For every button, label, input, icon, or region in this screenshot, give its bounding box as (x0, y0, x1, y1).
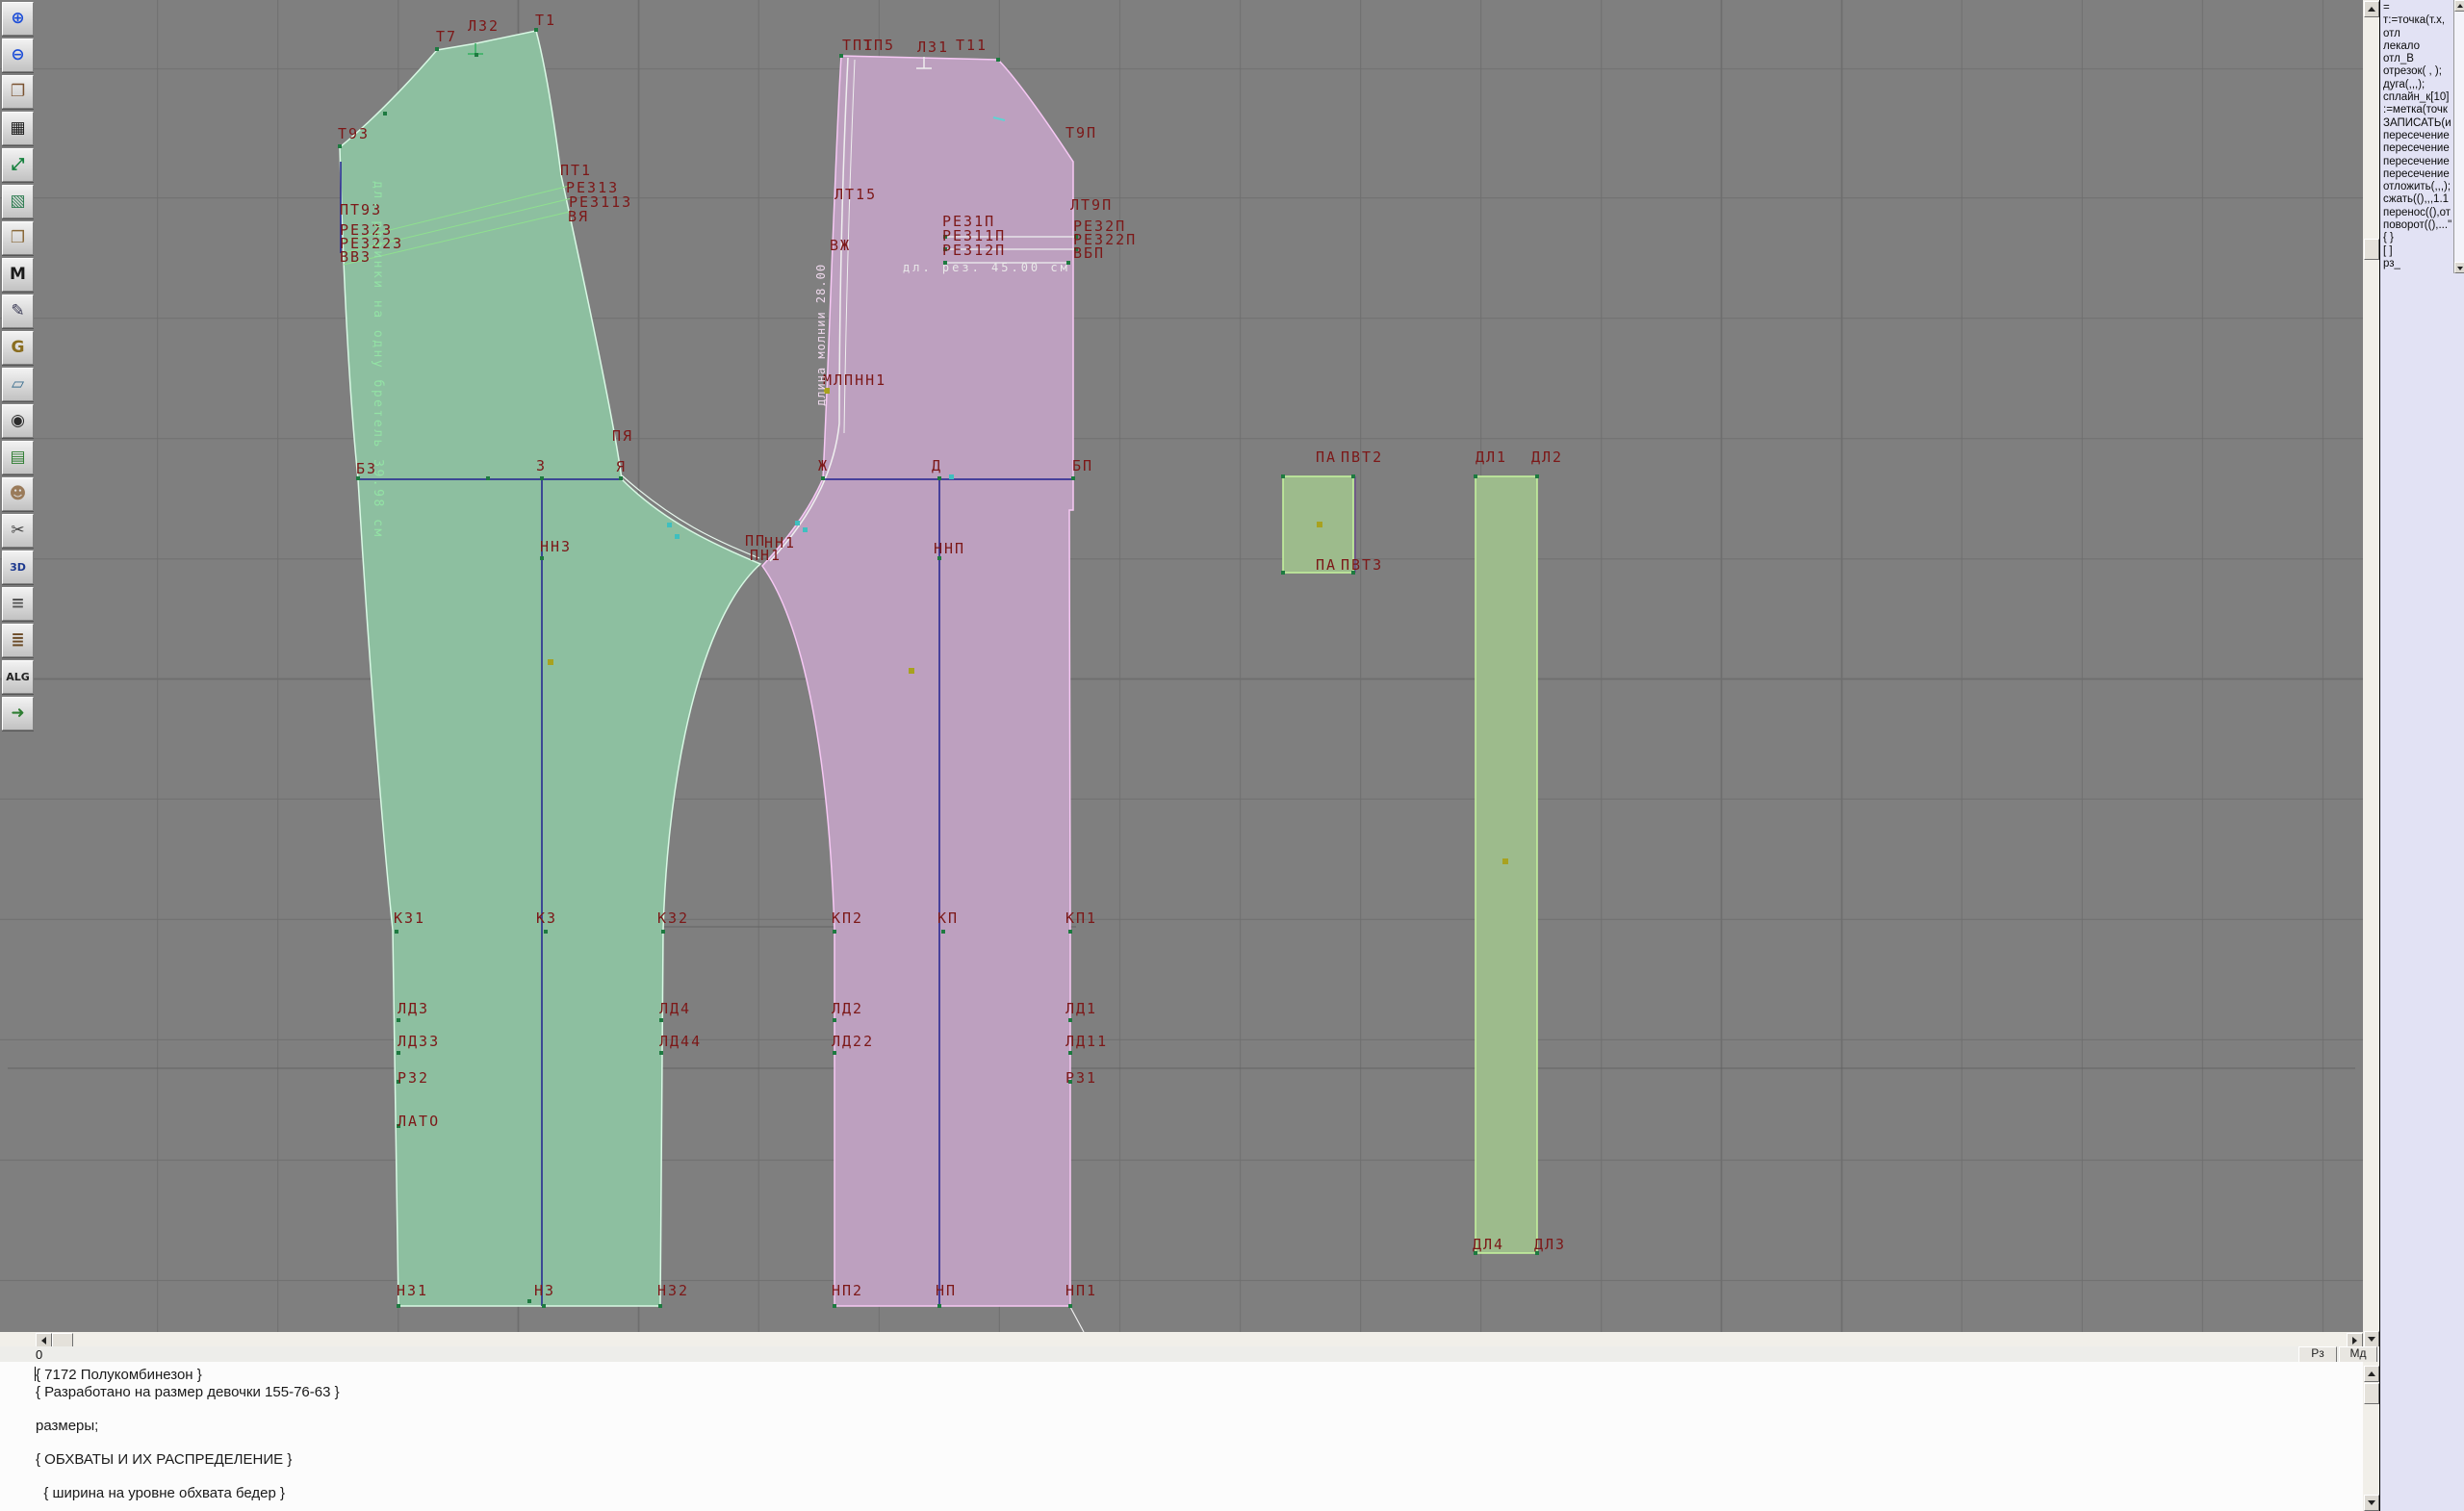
tool-button-model-photo[interactable]: ☻ (2, 477, 34, 511)
pattern-label: НЗ (534, 1283, 555, 1299)
pattern-label: Ж (818, 458, 829, 474)
pattern-label: КП2 (832, 910, 863, 927)
pattern-label: ДЛ2 (1531, 449, 1563, 466)
pattern-piece-front[interactable] (762, 56, 1073, 1306)
pattern-label: ЛД3 (398, 1001, 429, 1017)
vertical-scroll-thumb[interactable] (2364, 239, 2379, 260)
toolbar: ⊕ ⊖ ❐ ▦ ⤢ ▧ ❒ M ✎ G ▱ ◉ (2, 2, 37, 733)
pattern-label: Р32 (398, 1070, 429, 1087)
tool-button-camera[interactable]: ◉ (2, 404, 34, 438)
left-arrow-icon (38, 1337, 46, 1345)
palette-item[interactable]: пересечение (2380, 156, 2464, 168)
console-scrollbar[interactable] (2363, 1362, 2379, 1511)
pattern-label: ЛТ9П (1070, 197, 1113, 214)
zipper-length-note: длина молнии 28.00 (814, 264, 828, 406)
pattern-label: ЛТ15 (834, 187, 877, 203)
horizontal-scroll-thumb[interactable] (52, 1333, 73, 1347)
pattern-label: Т11 (956, 38, 988, 54)
palette-item[interactable]: ЗАПИСАТЬ(и (2380, 117, 2464, 130)
waist-elastic-note: дл. рез. 45.00 см (903, 261, 1070, 274)
console-lines: { 7172 Полукомбинезон }{ Разработано на … (0, 1367, 2363, 1501)
palette-item[interactable]: :=метка(точк (2380, 104, 2464, 116)
guide-lines (8, 927, 2355, 1068)
pattern-label: ДЛ1 (1476, 449, 1507, 466)
palette-item[interactable]: [ ] (2380, 245, 2464, 258)
palette-item[interactable]: поворот((),..." (2380, 219, 2464, 232)
tool-icon: ☻ (10, 486, 27, 502)
tool-icon: M (10, 267, 26, 283)
down-arrow-icon (2368, 1337, 2375, 1345)
pattern-label: КП (937, 910, 959, 927)
tool-button-blueprint[interactable]: ▱ (2, 368, 34, 401)
palette-item[interactable]: сжать((),,,1.1 (2380, 193, 2464, 206)
tool-icon: ◉ (11, 413, 25, 429)
pattern-label: ЛЗ2 (468, 18, 500, 35)
pattern-label: ННЗ (540, 539, 572, 555)
console-scroll-down-button[interactable] (2364, 1495, 2379, 1511)
md-button[interactable]: Мд (2339, 1346, 2377, 1363)
tool-icon: ▤ (10, 449, 25, 466)
tool-icon: 3D (10, 562, 26, 573)
tool-button-preview-sheet[interactable]: ❐ (2, 75, 34, 109)
pattern-label: ПВТ3 (1341, 557, 1383, 574)
pattern-label: Т9П (1065, 125, 1097, 141)
tool-icon: ❒ (11, 230, 25, 246)
tool-icon: G (12, 340, 25, 356)
text-cursor (35, 1367, 36, 1381)
palette-list: =т:=точка(т.х,отллекалоотл_Вотрезок( , )… (2380, 2, 2464, 270)
pattern-label: ЛД33 (398, 1034, 440, 1050)
tool-icon: ≡ (11, 596, 24, 612)
pattern-label: ТП5 (863, 38, 895, 54)
up-arrow-icon (2368, 3, 2375, 12)
palette-item[interactable]: дуга(,,,); (2380, 79, 2464, 91)
command-console[interactable]: { 7172 Полукомбинезон }{ Разработано на … (0, 1362, 2363, 1511)
tool-icon: ▦ (10, 120, 25, 137)
palette-item[interactable]: отл_В (2380, 53, 2464, 65)
console-line: { Разработано на размер девочки 155-76-6… (36, 1384, 2363, 1401)
pattern-label: Т7 (436, 29, 457, 45)
console-line (36, 1468, 2363, 1485)
palette-item[interactable]: т:=точка(т.х, (2380, 14, 2464, 27)
console-line: { ОБХВАТЫ И ИХ РАСПРЕДЕЛЕНИЕ } (36, 1451, 2363, 1469)
tool-icon: ❐ (11, 84, 25, 100)
cad-application: Т7ЛЗ2Т1Т93ПТ1РЕ313РЕ3113ВЯПТ93РЕ323РЕ322… (0, 0, 2464, 1511)
console-line: { 7172 Полукомбинезон } (36, 1367, 2363, 1384)
console-line (36, 1400, 2363, 1418)
pattern-label: Р31 (1065, 1070, 1097, 1087)
tool-icon: ⊕ (11, 11, 24, 27)
pattern-label: ПА (1316, 449, 1337, 466)
tool-button-measure-line[interactable]: ⤢ (2, 148, 34, 182)
pattern-label: ПТ1 (560, 163, 592, 179)
tool-button-drafting-tools[interactable]: ✎ (2, 295, 34, 328)
pattern-label: КЗ (536, 910, 557, 927)
tool-button-pattern-piece[interactable]: ❒ (2, 221, 34, 255)
pattern-label: НЗ1 (397, 1283, 428, 1299)
tool-button-graphics-g[interactable]: G (2, 331, 34, 365)
tool-button-garment-sketch[interactable]: ✂ (2, 514, 34, 548)
tool-icon: ⤢ (12, 157, 25, 173)
status-bar: 0 Рз Мд (0, 1346, 2379, 1362)
pattern-label: РЕ312П (942, 243, 1006, 259)
pattern-label: ВЯ (568, 209, 589, 225)
tool-icon: ALG (6, 672, 30, 682)
palette-item[interactable]: сплайн_к[10] (2380, 91, 2464, 104)
tool-button-spec-table[interactable]: ▤ (2, 441, 34, 474)
pattern-label: ПН1 (750, 548, 782, 564)
palette-item[interactable]: { } (2380, 232, 2464, 244)
console-scroll-thumb[interactable] (2364, 1383, 2379, 1404)
console-line (36, 1434, 2363, 1451)
drawing-canvas[interactable]: Т7ЛЗ2Т1Т93ПТ1РЕ313РЕ3113ВЯПТ93РЕ323РЕ322… (0, 0, 2363, 1332)
pattern-label: ВБП (1073, 245, 1105, 262)
pattern-label: ЛД22 (832, 1034, 874, 1050)
tool-button-view-3d[interactable]: 3D (2, 551, 34, 584)
pattern-label: ПВТ2 (1341, 449, 1383, 466)
pattern-label: ДЛ3 (1534, 1237, 1566, 1253)
strap-elastic-note: дл. резинки на одну бретель 39.98 см (371, 181, 385, 539)
pattern-label: ЛД4 (659, 1001, 691, 1017)
up-arrow-icon (2368, 1368, 2375, 1376)
tool-button-image[interactable]: ▧ (2, 185, 34, 218)
scroll-down-button[interactable] (2364, 1331, 2379, 1347)
tool-button-zoom-out[interactable]: ⊖ (2, 38, 34, 72)
console-line: размеры; (36, 1418, 2363, 1435)
pattern-label: Т1 (535, 13, 556, 29)
palette-item[interactable]: перенос((),от (2380, 207, 2464, 219)
palette-scrollbar[interactable] (2453, 0, 2464, 273)
tool-button-books[interactable]: ≣ (2, 624, 34, 657)
down-arrow-icon (2368, 1500, 2375, 1509)
tool-button-text-page[interactable]: ≡ (2, 587, 34, 621)
pattern-label: ЛД2 (832, 1001, 863, 1017)
pattern-label: ПА (1316, 557, 1337, 574)
horizontal-scrollbar[interactable] (0, 1332, 2363, 1346)
palette-item[interactable]: пересечение (2380, 168, 2464, 181)
tool-button-grid[interactable]: ▦ (2, 112, 34, 145)
pattern-label: ВЖ (830, 238, 851, 254)
palette-item[interactable]: пересечение (2380, 130, 2464, 142)
pattern-label: КП1 (1065, 910, 1097, 927)
pattern-label: Т93 (338, 126, 370, 142)
palette-item[interactable]: пересечение (2380, 142, 2464, 155)
tool-icon: ▧ (10, 193, 25, 210)
pattern-label: ЛД1 (1065, 1001, 1097, 1017)
tool-icon: ▱ (12, 376, 24, 393)
pattern-label: КЗ1 (394, 910, 425, 927)
tool-icon: ⊖ (11, 47, 24, 64)
tool-icon: ≣ (11, 632, 24, 649)
pattern-label: БП (1072, 458, 1093, 474)
pattern-label: НП (936, 1283, 957, 1299)
command-palette: =т:=точка(т.х,отллекалоотл_Вотрезок( , )… (2379, 0, 2464, 1511)
tool-icon: ✂ (11, 523, 24, 539)
scroll-up-button[interactable] (2364, 1, 2379, 17)
palette-scroll-down-button[interactable] (2454, 262, 2464, 273)
right-arrow-icon (2352, 1337, 2361, 1345)
tool-icon: ✎ (11, 303, 24, 320)
pattern-label: Я (616, 459, 627, 475)
pattern-piece-strap[interactable] (1476, 476, 1537, 1253)
down-arrow-icon (2457, 267, 2463, 273)
palette-item[interactable]: отложить(,,,); (2380, 181, 2464, 193)
pattern-label: ЛД11 (1065, 1034, 1108, 1050)
pattern-drawing (0, 0, 2363, 1332)
pattern-label: Д (932, 458, 942, 474)
console-line: { ширина на уровне обхвата бедер } (36, 1485, 2363, 1502)
pattern-label: З (536, 458, 547, 474)
palette-item[interactable]: = (2380, 2, 2464, 14)
console-scroll-up-button[interactable] (2364, 1366, 2379, 1382)
rz-button[interactable]: Рз (2298, 1346, 2337, 1363)
up-arrow-icon (2457, 1, 2463, 8)
palette-item[interactable]: лекало (2380, 40, 2464, 53)
vertical-scrollbar[interactable] (2363, 0, 2379, 1346)
pattern-label: КЗ2 (657, 910, 689, 927)
tool-button-algorithm[interactable]: ALG (2, 660, 34, 694)
palette-item[interactable]: отрезок( , ); (2380, 65, 2464, 78)
scroll-right-button[interactable] (2347, 1333, 2363, 1347)
tool-icon: ➜ (11, 705, 24, 722)
tool-button-monogram-m[interactable]: M (2, 258, 34, 292)
tool-button-zoom-in[interactable]: ⊕ (2, 2, 34, 36)
tool-button-exit[interactable]: ➜ (2, 697, 34, 730)
pattern-label: НЗ2 (657, 1283, 689, 1299)
scroll-left-button[interactable] (36, 1333, 52, 1347)
pattern-label: ПЯ (612, 428, 633, 445)
pattern-label: НП2 (832, 1283, 863, 1299)
pattern-label: НП1 (1065, 1283, 1097, 1299)
pattern-label: ВВ3 (340, 249, 372, 266)
pattern-label: ДЛ4 (1473, 1237, 1504, 1253)
pattern-label: ЛД44 (659, 1034, 702, 1050)
status-value: 0 (36, 1347, 42, 1362)
palette-item[interactable]: рз_ (2380, 258, 2464, 270)
palette-scroll-up-button[interactable] (2454, 0, 2464, 12)
pattern-label: МЛПНН1 (823, 372, 886, 389)
pattern-label: ННП (934, 541, 965, 557)
pattern-label: ЛАТО (398, 1114, 440, 1130)
palette-item[interactable]: отл (2380, 28, 2464, 40)
pattern-label: ЛЗ1 (917, 39, 949, 56)
